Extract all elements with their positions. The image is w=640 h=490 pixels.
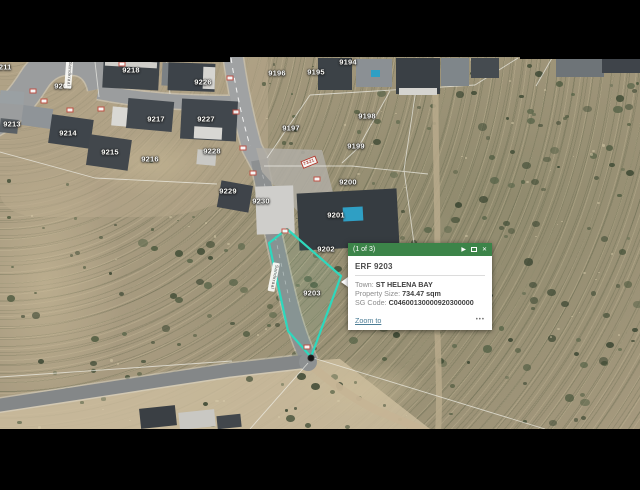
app-screen: 9211920592189226921792279213921492159216… [0,0,640,490]
letterbox-top-left [0,0,230,62]
parcel-label-9230: 9230 [252,197,270,206]
parcel-label-9228: 9228 [203,147,221,156]
field-property-size: Property Size: 734.47 sqm [355,289,485,298]
parcel-label-9203: 9203 [303,289,321,298]
map-canvas[interactable]: 9211920592189226921792279213921492159216… [0,0,640,490]
dock-icon[interactable] [471,247,477,252]
parcel-label-9196: 9196 [268,69,286,78]
parcel-label-9194: 9194 [339,58,357,67]
road-address-marker [282,229,289,234]
road-address-marker [304,345,311,350]
close-icon[interactable]: ✕ [482,247,487,253]
parcel-label-9227: 9227 [197,115,215,124]
field-town: Town: ST HELENA BAY [355,280,485,289]
parcel-label-9217: 9217 [147,115,165,124]
parcel-label-9215: 9215 [101,148,119,157]
parcel-label-9195: 9195 [307,68,325,77]
letterbox-bottom [0,429,640,490]
parcel-label-9218: 9218 [122,66,140,75]
popup-pointer [341,277,348,287]
road-address-marker [98,107,105,112]
field-sg-code: SG Code: C04600130000920300000 [355,298,485,307]
parcel-label-9214: 9214 [59,129,77,138]
popup-divider [355,275,485,276]
parcel-label-9226: 9226 [194,78,212,87]
popup-window: (1 of 3) ▶ ✕ ERF 9203 Town: ST HELENA BA… [348,243,492,330]
parcel-label-9201: 9201 [327,211,345,220]
parcel-label-9229: 9229 [219,187,237,196]
popup-body: ERF 9203 Town: ST HELENA BAY Property Si… [348,256,492,330]
parcel-label-9200: 9200 [339,178,357,187]
zoom-to-link[interactable]: Zoom to [355,316,381,325]
road-address-marker [314,177,321,182]
road-address-marker [240,146,247,151]
parcel-label-9199: 9199 [347,142,365,151]
popup-header: (1 of 3) ▶ ✕ [348,243,492,256]
next-feature-icon[interactable]: ▶ [461,247,466,253]
parcel-label-9213: 9213 [3,120,21,129]
street-name-label: Sandkraal [268,262,280,291]
road-address-marker [67,108,74,113]
road-address-marker [41,99,48,104]
popup-pagination: (1 of 3) [353,246,375,253]
popup-footer: Zoom to ••• [355,316,485,325]
parcel-label-9216: 9216 [141,155,159,164]
parcel-label-9197: 9197 [282,124,300,133]
road-address-marker [233,110,240,115]
road-address-marker [227,76,234,81]
parcel-label-9198: 9198 [358,112,376,121]
parcel-label-9211: 9211 [0,63,12,72]
more-options-icon[interactable]: ••• [476,317,485,323]
parcel-label-9202: 9202 [317,245,335,254]
popup-title: ERF 9203 [355,262,485,271]
road-address-marker [250,171,257,176]
plan-number-label: 7321 [300,156,317,169]
road-address-marker [30,89,37,94]
road-address-marker [119,62,126,67]
letterbox-top-right [520,0,640,59]
map-labels-layer: 9211920592189226921792279213921492159216… [0,0,640,490]
